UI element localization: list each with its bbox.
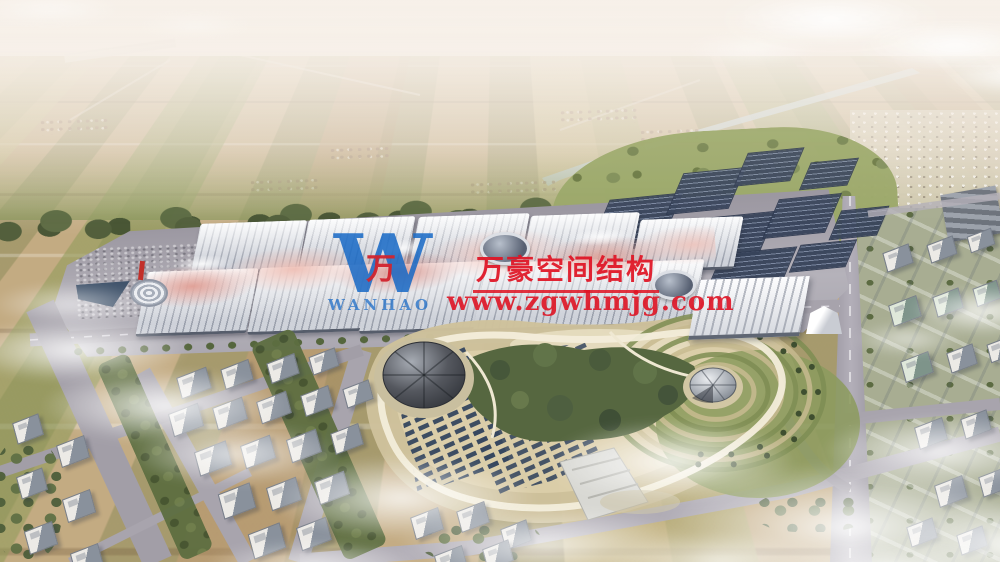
white-ribbed-hall bbox=[688, 276, 809, 340]
aerial-rendering-canvas: W 万 WANHAO 万豪空间结构 www.zgwhmjg.com bbox=[0, 0, 1000, 562]
tree-grove bbox=[756, 492, 866, 532]
